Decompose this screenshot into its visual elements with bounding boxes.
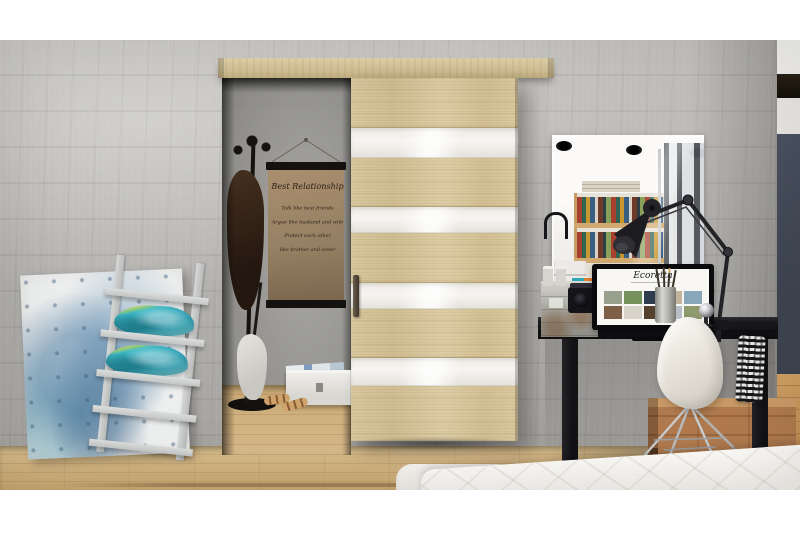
chrome-sphere-lamp [699,303,714,318]
doorway-lintel-shadow [222,78,351,93]
sliding-door-rail [218,58,554,78]
poster-bottom-rail [266,300,346,308]
door-white-stripe [351,128,518,158]
door-handle [353,275,359,317]
door-white-stripe [351,207,518,232]
thumbnail [624,306,642,319]
rail-end-cap [218,58,224,78]
door-wood-stripe [351,78,518,128]
background-wall-light [777,98,800,134]
storage-jar [543,266,553,286]
poster-line: Talk like best friends [271,205,344,211]
thumbnail [684,291,702,304]
laundry-bag [237,334,267,400]
pen-cup [655,287,676,323]
poster-line: Protect each other [271,233,344,239]
door-wood-stripe [351,158,518,207]
monitor-stand [648,330,660,337]
thumbnail [604,291,622,304]
thumbnail [624,291,642,304]
poster-text: Best Relationship Talk like best friends… [271,174,344,261]
sliding-door [350,78,518,441]
poster-line: Argue like husband and wife [271,219,344,225]
trunk-label [549,298,563,308]
showroom-photo: Best Relationship Talk like best friends… [0,40,800,490]
door-wood-stripe [351,309,518,358]
door-white-stripe [351,283,518,309]
website-logo: Ecoretta [597,271,709,281]
poster-paper: Best Relationship Talk like best friends… [268,170,344,300]
door-white-stripe [351,358,518,386]
doorway-left-jamb-shadow [222,78,235,455]
door-floor-shadow [344,437,524,450]
patterned-bag [735,335,765,402]
ceiling-beam [777,74,800,98]
poster-line: like brother and sister [271,247,344,253]
product-photo-frame: Best Relationship Talk like best friends… [0,0,800,533]
poster-top-rail [266,162,346,170]
door-wood-stripe [351,233,518,283]
poster-title: Best Relationship [271,182,344,191]
website-thumbnail-grid [604,291,704,319]
wall-poster: Best Relationship Talk like best friends… [266,162,346,308]
background-ceiling [777,40,800,74]
storage-jar [556,266,566,286]
doorway-opening: Best Relationship Talk like best friends… [222,78,351,455]
poster-hanging-string [266,136,346,164]
ladder-shelf [88,254,212,462]
thumbnail [604,306,622,319]
rail-end-cap [548,58,554,78]
door-wood-stripe [351,386,518,441]
